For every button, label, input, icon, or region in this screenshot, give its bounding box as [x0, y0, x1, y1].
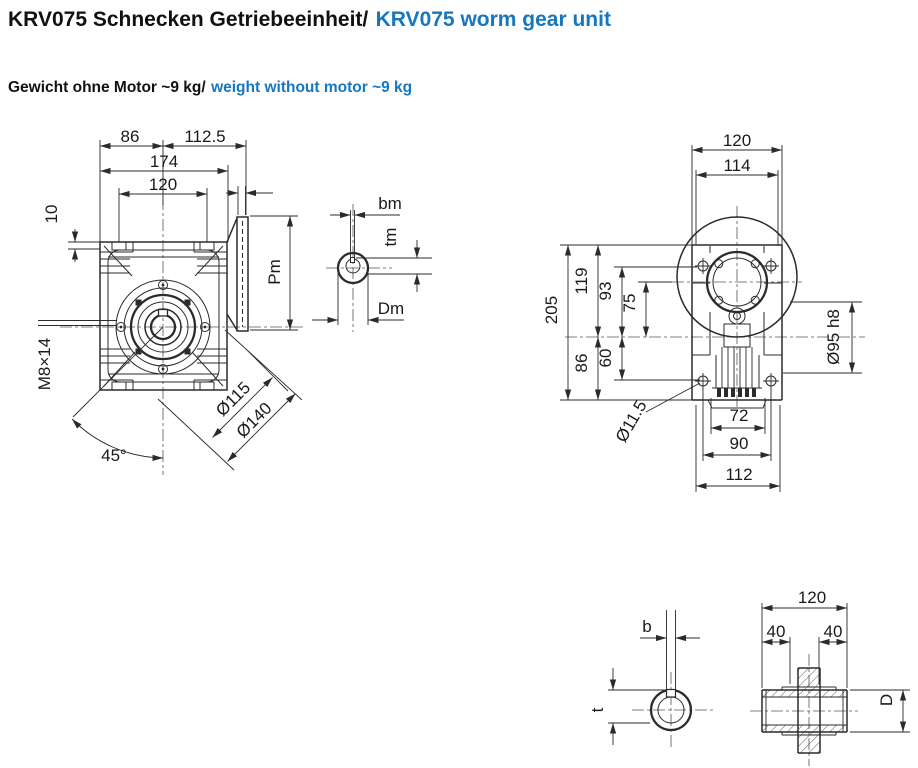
dim-mount-hole: Ø11.5 [612, 397, 651, 446]
output-bore-dimensions [608, 610, 700, 745]
dim-m8x14: M8×14 [35, 338, 54, 390]
dim-114: 114 [723, 156, 750, 175]
technical-drawing: 86 112.5 174 120 10 M8×14 45° Ø115 Ø140 … [0, 0, 918, 768]
side-view-centerlines [565, 206, 865, 412]
hollow-shaft-section: 120 40 40 D [750, 588, 910, 766]
front-view: 86 112.5 174 120 10 M8×14 45° Ø115 Ø140 … [35, 127, 305, 475]
dim-pm: Pm [265, 259, 284, 285]
output-bore-section: b t [588, 610, 714, 748]
dim-d: D [877, 694, 896, 706]
dim-112-5: 112.5 [184, 127, 225, 146]
dim-side-120: 120 [723, 131, 751, 150]
dim-120: 120 [149, 175, 177, 194]
dim-bm: bm [378, 194, 402, 213]
hollow-shaft-hatching [762, 668, 847, 753]
dim-40-right: 40 [824, 622, 843, 641]
motor-shaft-dimensions [312, 210, 432, 325]
motor-keyway [351, 258, 355, 263]
dim-174: 174 [150, 152, 178, 171]
dim-dm: Dm [378, 299, 404, 318]
dim-75: 75 [620, 294, 639, 313]
motor-flange-plate [227, 217, 248, 331]
dim-40-left: 40 [767, 622, 786, 641]
side-view: 120 114 205 119 93 75 86 60 Ø95 h8 Ø11.5… [542, 131, 865, 492]
dim-10: 10 [42, 205, 61, 224]
dim-60: 60 [596, 349, 615, 368]
motor-shaft-section: bm tm Dm [312, 194, 432, 332]
bore-keyway [667, 690, 676, 698]
output-keyway [159, 310, 168, 317]
dim-spigot: Ø95 h8 [824, 309, 843, 365]
dim-side-86: 86 [572, 354, 591, 373]
dim-t: t [588, 707, 607, 712]
dim-205: 205 [542, 296, 561, 324]
side-view-dimensions [560, 145, 862, 492]
dim-45deg: 45° [101, 446, 127, 465]
dim-112: 112 [725, 465, 752, 484]
dim-119: 119 [572, 267, 591, 294]
dim-86: 86 [121, 127, 140, 146]
dim-72: 72 [730, 406, 749, 425]
dim-93: 93 [596, 282, 615, 301]
dim-b: b [642, 617, 651, 636]
front-view-centerlines [60, 198, 305, 475]
dim-shaft-120: 120 [798, 588, 826, 607]
dim-tm: tm [381, 228, 400, 247]
dim-90: 90 [730, 434, 749, 453]
